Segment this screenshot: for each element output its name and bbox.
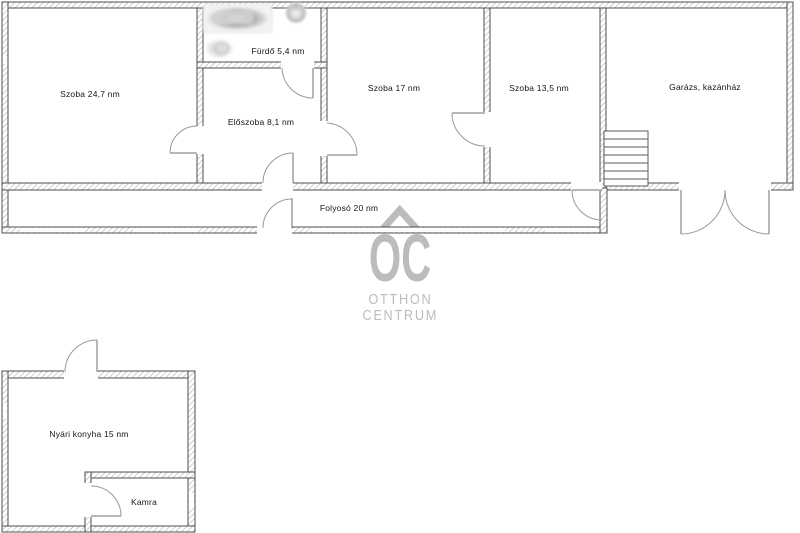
door-opening [257,226,292,234]
window-opening [545,228,597,232]
door-arc [65,340,97,372]
stairs [604,131,648,186]
garage-door-opening [679,182,771,191]
window-opening [189,493,194,508]
floorplan-drawing [0,0,800,533]
outer-wall-left [2,2,8,233]
window-opening [133,228,197,232]
floorplan-canvas: OC OTTHON CENTRUM [0,0,800,533]
toilet-icon [206,39,233,58]
door-arc [263,153,293,183]
window-opening [20,228,85,232]
door-arc [725,190,769,234]
wall-eloszoba-szoba17 [321,8,327,183]
wall-szoba17-szoba135 [484,8,490,183]
corridor-top-wall [2,183,607,190]
door-opening [64,370,98,379]
window-opening [3,56,7,64]
door-opening [262,182,293,191]
bathtub-icon [203,4,272,33]
door-opening [483,112,491,147]
door-arc [327,123,357,155]
corridor-bottom-wall [2,227,607,233]
summer-kitchen-bottom-wall [2,526,195,532]
door-arc [282,68,313,98]
door-opening [196,126,204,154]
door-opening [84,483,92,517]
pantry-top-wall [85,472,195,478]
wall-szoba247-eloszoba [197,8,203,183]
summer-kitchen-top-wall [2,371,195,378]
outer-wall-top [2,2,793,8]
summer-kitchen-left-wall [2,371,8,532]
door-opening [320,121,328,156]
door-arc [572,190,602,220]
door-arc [452,113,485,146]
window-opening [312,228,505,232]
door-arc [170,126,197,153]
door-arc [263,199,292,228]
corridor-right-wall [600,188,607,233]
door-arc [681,190,725,234]
washbasin-icon [286,3,307,24]
window-opening [3,403,7,419]
door-arc [91,486,121,516]
outer-wall-right [787,2,793,190]
door-opening [281,61,314,69]
